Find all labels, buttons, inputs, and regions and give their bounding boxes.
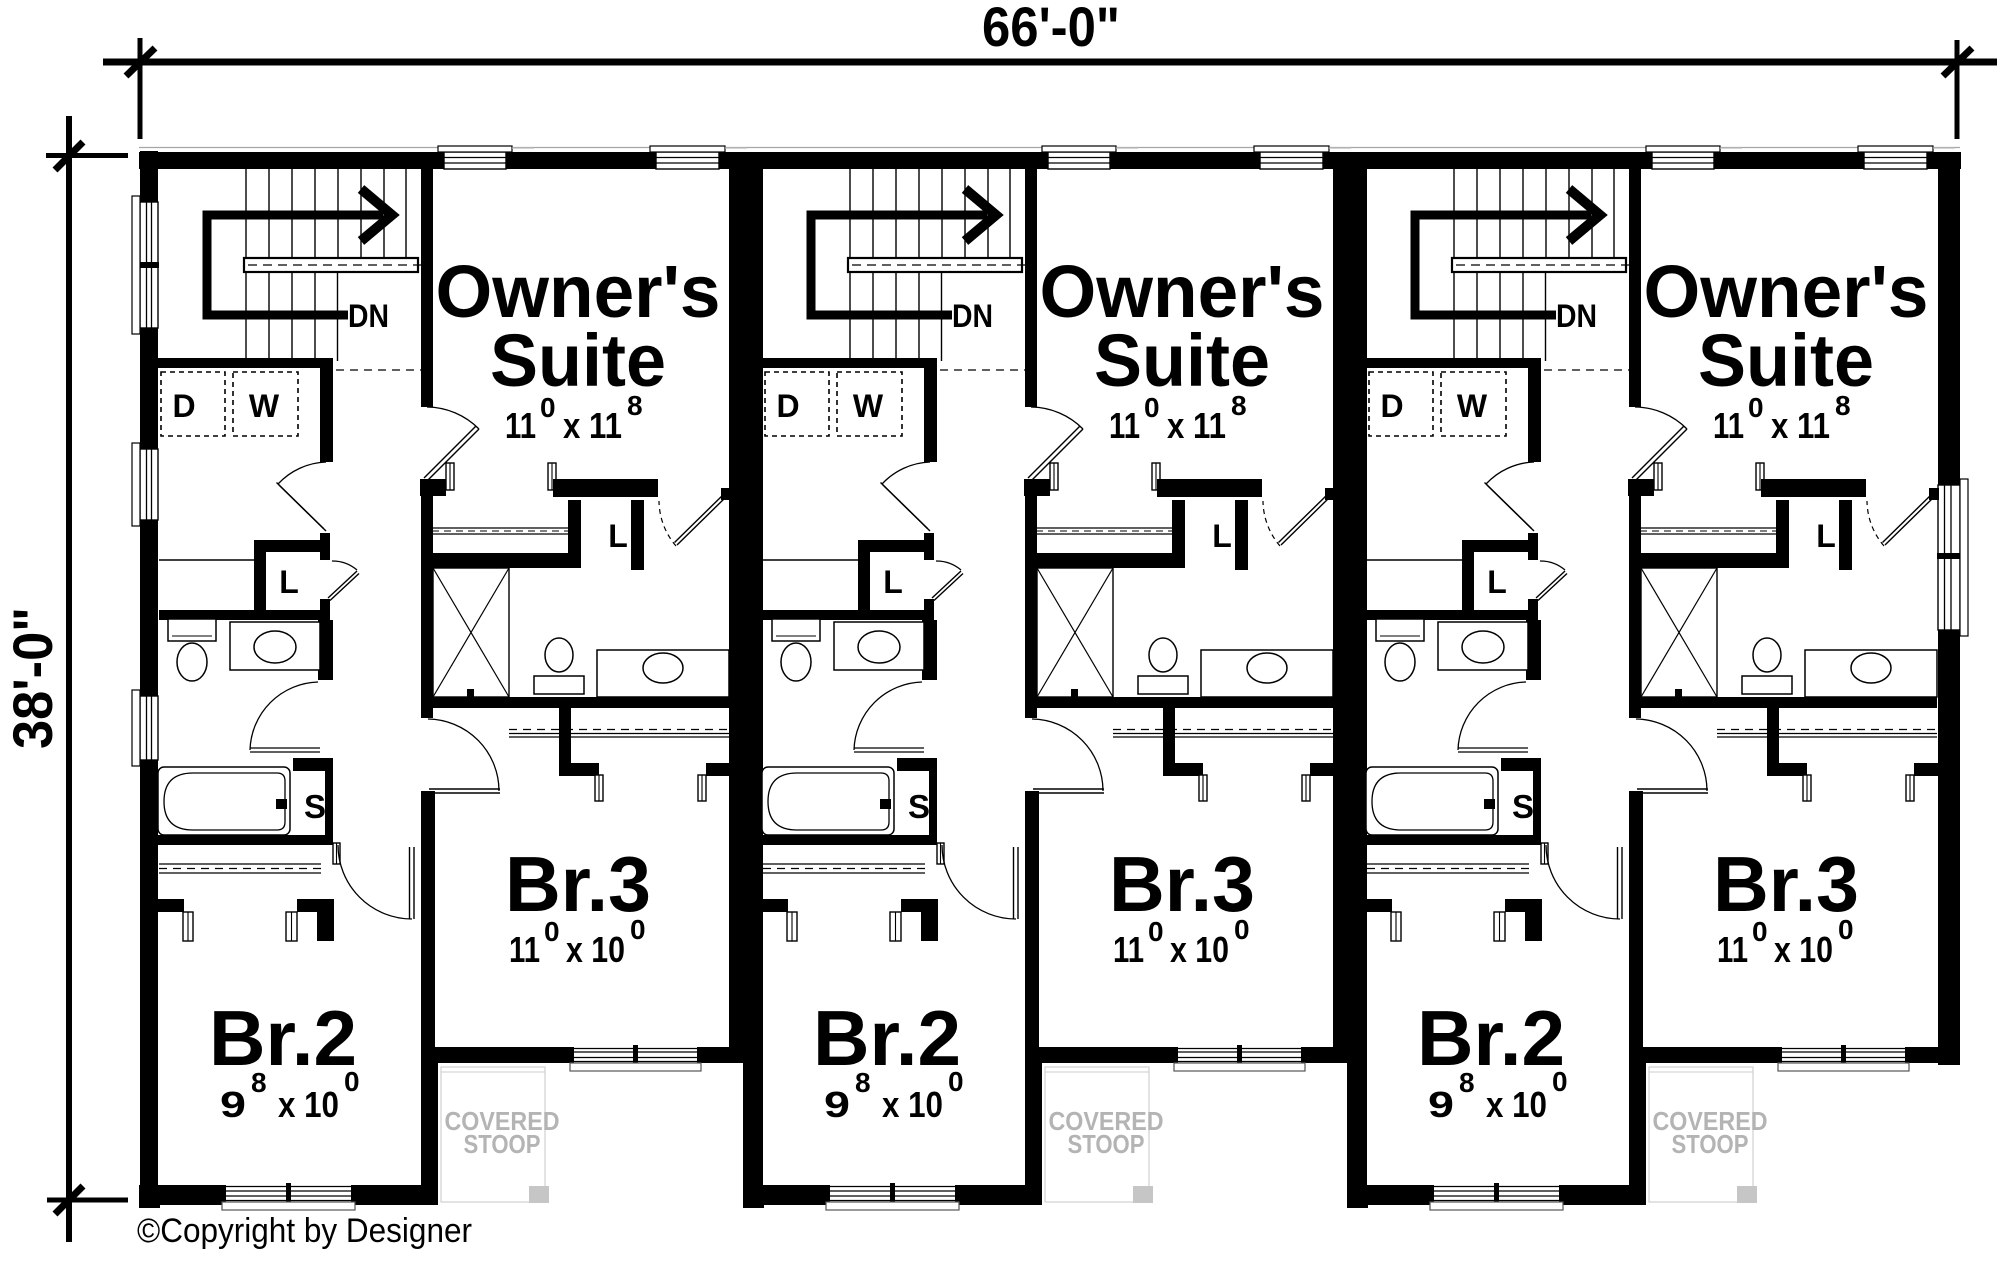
svg-text:DN: DN bbox=[952, 298, 993, 334]
svg-text:9: 9 bbox=[1428, 1084, 1454, 1125]
svg-text:8: 8 bbox=[251, 1067, 267, 1098]
svg-text:0: 0 bbox=[1552, 1066, 1568, 1097]
svg-text:D: D bbox=[1380, 388, 1403, 424]
svg-text:11: 11 bbox=[1113, 929, 1144, 970]
svg-text:S: S bbox=[304, 788, 326, 825]
svg-text:0: 0 bbox=[1144, 392, 1160, 423]
svg-text:x 10: x 10 bbox=[882, 1084, 943, 1125]
svg-text:x 11: x 11 bbox=[1771, 405, 1830, 446]
svg-text:D: D bbox=[172, 388, 195, 424]
svg-text:11: 11 bbox=[1717, 929, 1748, 970]
svg-text:0: 0 bbox=[1234, 914, 1250, 945]
svg-text:9: 9 bbox=[220, 1084, 246, 1125]
svg-text:L: L bbox=[1212, 518, 1232, 554]
svg-text:x 10: x 10 bbox=[1774, 929, 1833, 970]
svg-text:DN: DN bbox=[1556, 298, 1597, 334]
svg-text:DN: DN bbox=[348, 298, 389, 334]
svg-text:L: L bbox=[1487, 564, 1507, 600]
svg-text:W: W bbox=[1457, 388, 1488, 424]
svg-text:8: 8 bbox=[1231, 390, 1247, 421]
svg-text:0: 0 bbox=[1752, 916, 1768, 947]
svg-text:STOOP: STOOP bbox=[1672, 1129, 1749, 1159]
svg-text:L: L bbox=[883, 564, 903, 600]
svg-text:S: S bbox=[908, 788, 930, 825]
svg-text:11: 11 bbox=[1713, 405, 1744, 446]
svg-text:x 11: x 11 bbox=[563, 405, 622, 446]
svg-text:8: 8 bbox=[855, 1067, 871, 1098]
svg-text:0: 0 bbox=[1748, 392, 1764, 423]
svg-text:Br.2: Br.2 bbox=[1417, 994, 1565, 1082]
svg-text:38'-0": 38'-0" bbox=[1, 607, 64, 749]
svg-text:L: L bbox=[279, 564, 299, 600]
svg-text:9: 9 bbox=[824, 1084, 850, 1125]
svg-text:11: 11 bbox=[509, 929, 540, 970]
svg-text:0: 0 bbox=[344, 1066, 360, 1097]
svg-text:STOOP: STOOP bbox=[464, 1129, 541, 1159]
svg-text:x 10: x 10 bbox=[566, 929, 625, 970]
svg-text:S: S bbox=[1512, 788, 1534, 825]
svg-text:L: L bbox=[1816, 518, 1836, 554]
svg-text:0: 0 bbox=[1148, 916, 1164, 947]
svg-text:0: 0 bbox=[544, 916, 560, 947]
svg-text:66'-0": 66'-0" bbox=[982, 0, 1120, 58]
svg-text:Br.2: Br.2 bbox=[813, 994, 961, 1082]
svg-text:W: W bbox=[853, 388, 884, 424]
svg-text:0: 0 bbox=[1838, 914, 1854, 945]
svg-text:x 10: x 10 bbox=[1486, 1084, 1547, 1125]
svg-text:L: L bbox=[608, 518, 628, 554]
svg-text:W: W bbox=[249, 388, 280, 424]
svg-text:Br.2: Br.2 bbox=[209, 994, 357, 1082]
svg-text:11: 11 bbox=[1109, 405, 1140, 446]
svg-text:STOOP: STOOP bbox=[1068, 1129, 1145, 1159]
svg-text:8: 8 bbox=[627, 390, 643, 421]
svg-text:8: 8 bbox=[1835, 390, 1851, 421]
svg-text:0: 0 bbox=[630, 914, 646, 945]
svg-text:0: 0 bbox=[540, 392, 556, 423]
svg-text:D: D bbox=[776, 388, 799, 424]
svg-text:x 10: x 10 bbox=[1170, 929, 1229, 970]
svg-text:0: 0 bbox=[948, 1066, 964, 1097]
svg-text:x 11: x 11 bbox=[1167, 405, 1226, 446]
svg-text:x 10: x 10 bbox=[278, 1084, 339, 1125]
svg-text:8: 8 bbox=[1459, 1067, 1475, 1098]
svg-text:11: 11 bbox=[505, 405, 536, 446]
svg-text:©Copyright by Designer: ©Copyright by Designer bbox=[137, 1212, 472, 1250]
